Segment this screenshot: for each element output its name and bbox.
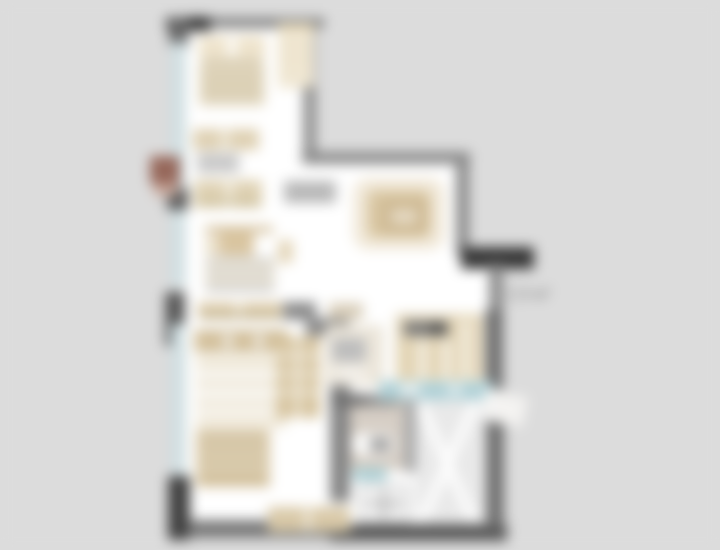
- svg-text:2,9 м²: 2,9 м²: [507, 286, 551, 303]
